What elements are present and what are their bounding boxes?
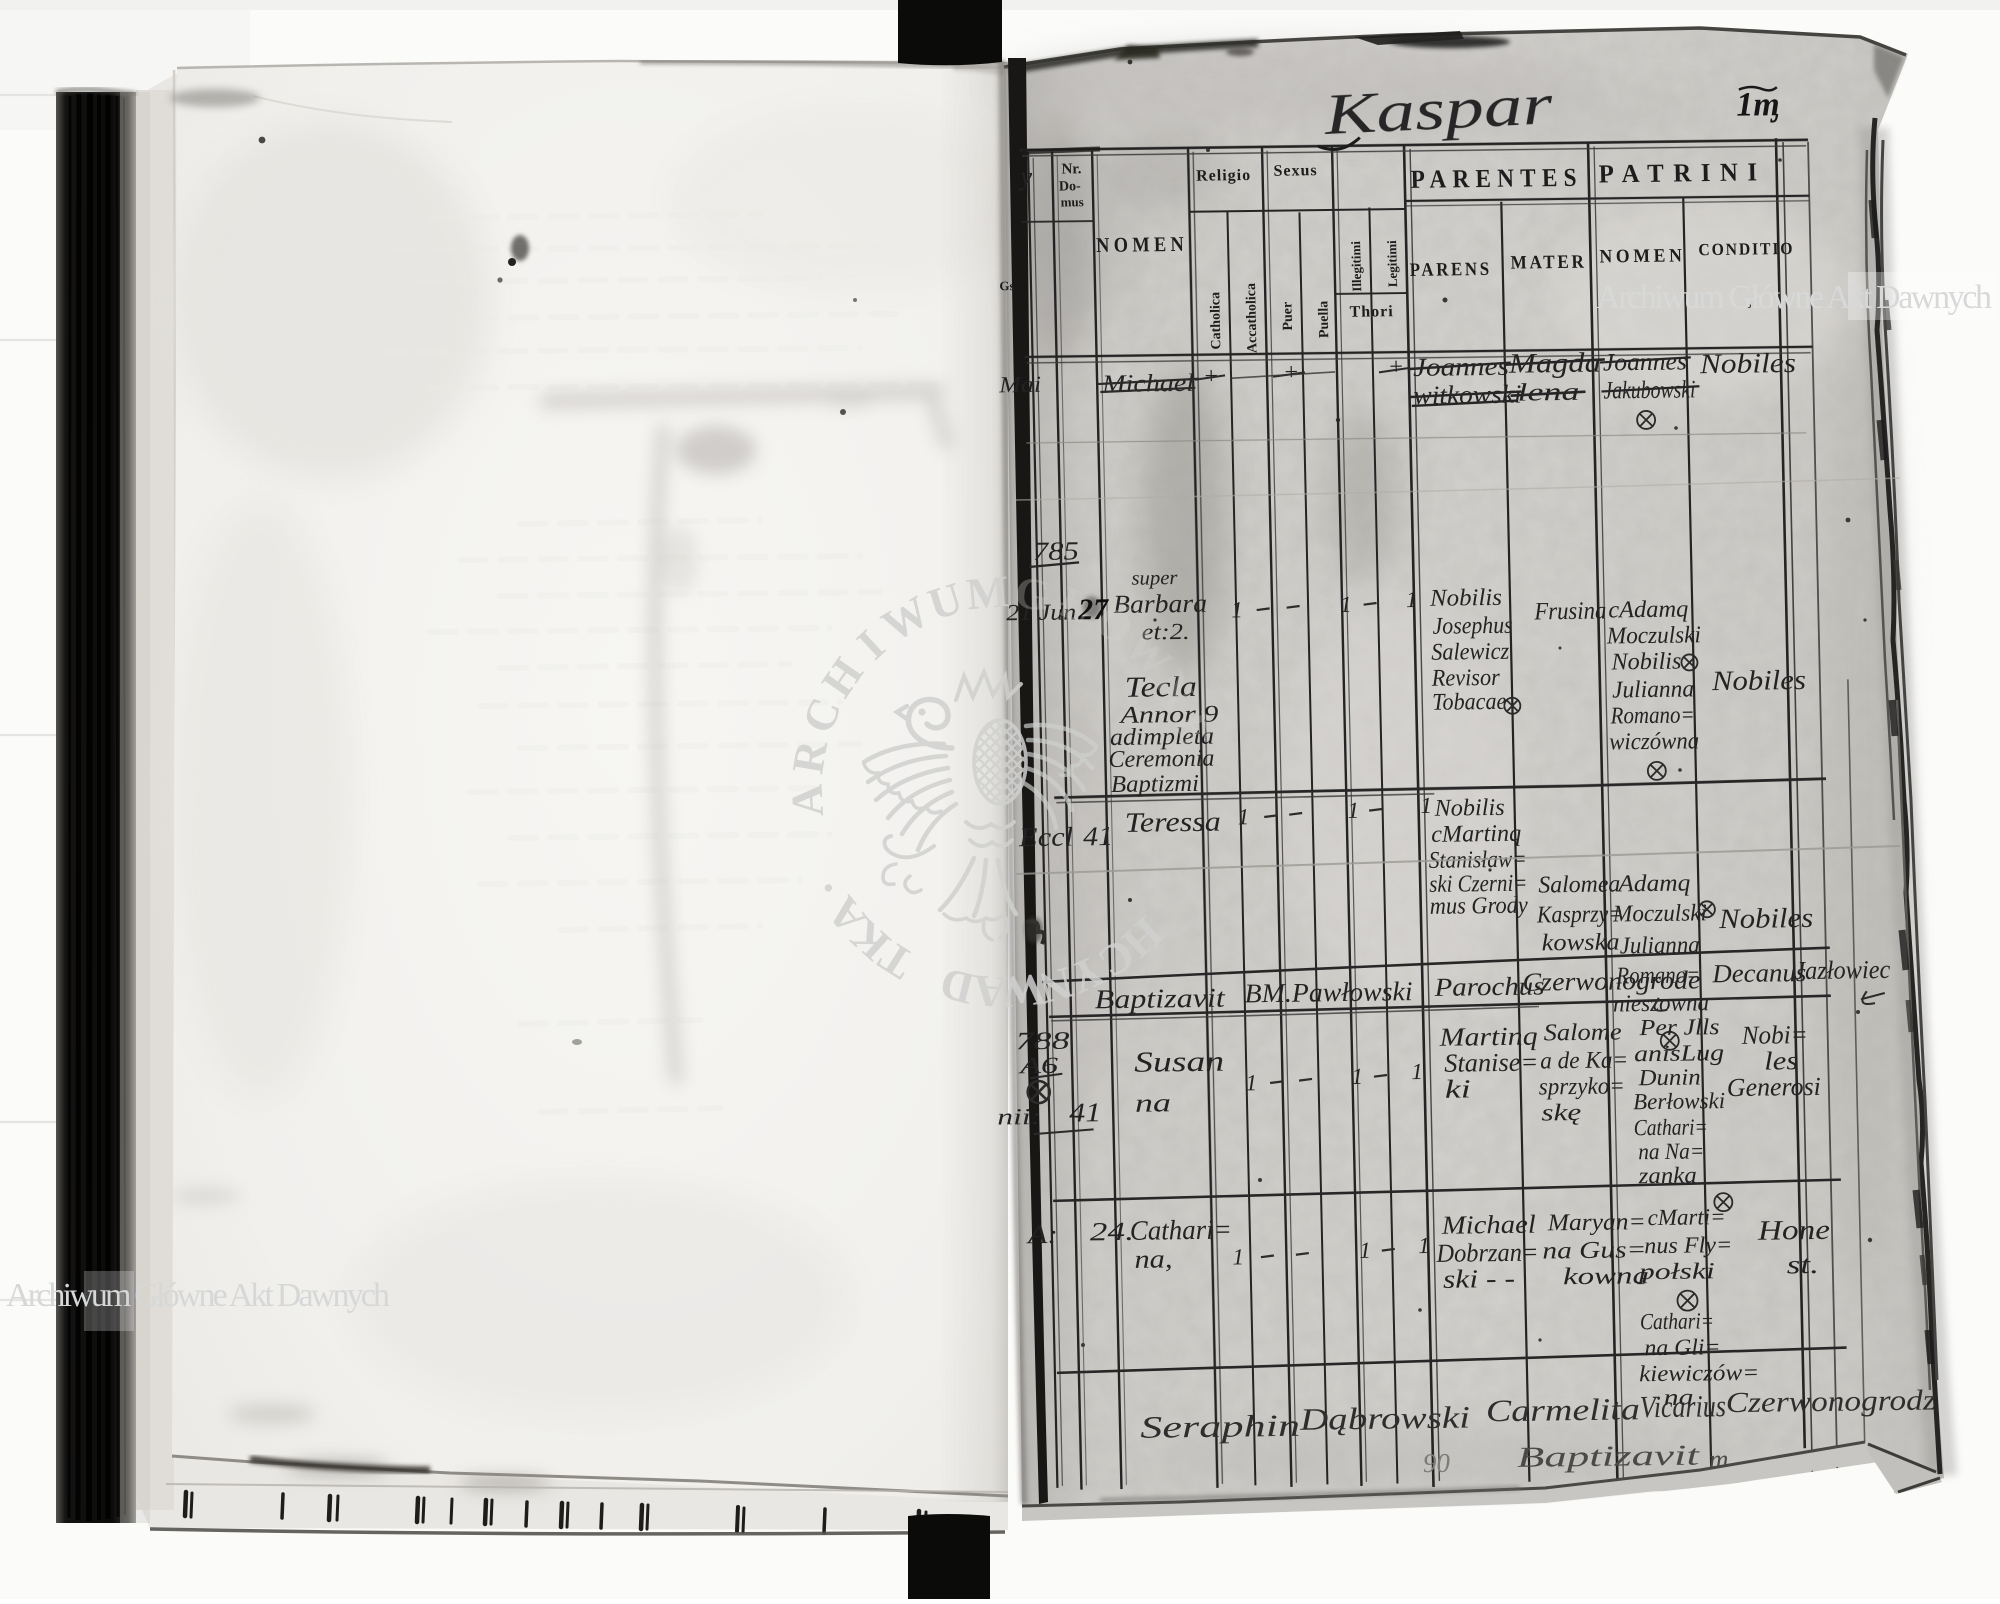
svg-text:1: 1 (1231, 597, 1243, 622)
svg-text:nii:: nii: (997, 1104, 1042, 1130)
svg-text:na: na (1135, 1088, 1172, 1117)
svg-text:M: M (964, 566, 1011, 620)
svg-text:1: 1 (1359, 1238, 1371, 1263)
svg-text:1: 1 (1411, 1059, 1423, 1084)
svg-text:Dunin: Dunin (1637, 1064, 1701, 1090)
svg-text:PATRINI: PATRINI (1598, 157, 1767, 188)
svg-text:połski: połski (1636, 1258, 1715, 1284)
svg-text:Baptizavit: Baptizavit (1517, 1440, 1701, 1474)
svg-text:Maryan=: Maryan= (1546, 1209, 1646, 1236)
svg-text:Per Jlls: Per Jlls (1638, 1014, 1720, 1040)
svg-text:1ᶆ: 1ᶆ (1736, 86, 1780, 124)
svg-text:Carmelita: Carmelita (1485, 1391, 1640, 1428)
svg-text:Sexus: Sexus (1273, 162, 1318, 180)
svg-text:Archiwum Główne Akt Dawnych: Archiwum Główne Akt Dawnych (1596, 279, 1992, 316)
svg-text:ski - -: ski - - (1443, 1264, 1516, 1294)
svg-text:Czerwonogrode: Czerwonogrode (1522, 965, 1701, 996)
svg-text:Tobacae: Tobacae (1432, 689, 1507, 716)
svg-text:Kasprzy=: Kasprzy= (1536, 901, 1623, 928)
svg-text:les: les (1764, 1046, 1799, 1075)
svg-text:CONDITIO: CONDITIO (1698, 239, 1794, 259)
svg-text:Moczulski: Moczulski (1612, 900, 1708, 927)
svg-text:Josephus: Josephus (1432, 613, 1513, 640)
svg-text:Susan: Susan (1134, 1046, 1225, 1079)
svg-text:Stanise=: Stanise= (1444, 1048, 1539, 1078)
svg-text:wiczówna: wiczówna (1609, 728, 1700, 755)
svg-text:Illegitimi: Illegitimi (1348, 241, 1364, 292)
svg-text:A: A (781, 782, 833, 818)
svg-text:Puer: Puer (1280, 302, 1296, 331)
svg-text:Hone: Hone (1756, 1215, 1830, 1247)
svg-text:Salewicz: Salewicz (1431, 639, 1510, 666)
svg-text:1: 1 (1420, 793, 1432, 818)
svg-text:cMarti=: cMarti= (1647, 1204, 1726, 1230)
svg-text:PARENS: PARENS (1410, 259, 1492, 281)
svg-text:1: 1 (1232, 1244, 1244, 1269)
svg-text:Adamq: Adamq (1616, 871, 1691, 898)
svg-text:MATER: MATER (1510, 252, 1586, 274)
svg-text:Czerwonogrodz: Czerwonogrodz (1725, 1384, 1936, 1419)
svg-text:Accatholica: Accatholica (1244, 283, 1261, 353)
svg-text:na Gli=: na Gli= (1644, 1334, 1721, 1360)
svg-text:41: 41 (1083, 821, 1114, 851)
svg-text:Cathari=: Cathari= (1633, 1114, 1708, 1140)
svg-text:Nobiles: Nobiles (1718, 903, 1814, 935)
svg-text:Thori: Thori (1349, 303, 1393, 321)
svg-text:BM.Pawłowski: BM.Pawłowski (1244, 976, 1413, 1008)
svg-text:kowna: kowna (1563, 1263, 1650, 1290)
svg-text:cAdamq: cAdamq (1608, 596, 1689, 623)
svg-text:zanka: zanka (1637, 1163, 1697, 1189)
svg-text:Mai: Mai (998, 372, 1042, 398)
svg-text:Berłowski: Berłowski (1633, 1088, 1726, 1114)
svg-text:Teressa: Teressa (1124, 807, 1221, 839)
svg-text:41: 41 (1069, 1097, 1102, 1127)
svg-text:Baptizmi: Baptizmi (1111, 771, 1200, 798)
svg-text:NOMEN: NOMEN (1599, 245, 1685, 267)
svg-text:Catholica: Catholica (1208, 292, 1224, 350)
svg-text:788: 788 (1015, 1028, 1070, 1056)
svg-text:1: 1 (1245, 1070, 1257, 1095)
svg-text:Baptizavit: Baptizavit (1094, 983, 1226, 1015)
svg-text:skę: skę (1541, 1100, 1582, 1127)
svg-text:kowska: kowska (1541, 929, 1620, 956)
svg-text:Cathari=: Cathari= (1640, 1308, 1715, 1334)
svg-text:Nr.: Nr. (1061, 161, 1081, 177)
svg-text:+: + (1388, 354, 1405, 380)
svg-text:1: 1 (1351, 1064, 1363, 1089)
svg-text:Salome: Salome (1543, 1019, 1622, 1046)
svg-text:Julianna: Julianna (1612, 676, 1695, 703)
svg-text:Decanus: Decanus (1711, 958, 1807, 988)
svg-text:Nobilis: Nobilis (1433, 795, 1505, 822)
svg-text:Julianna: Julianna (1619, 932, 1700, 959)
svg-text:Legitimi: Legitimi (1384, 240, 1400, 288)
svg-text:Nobilis: Nobilis (1610, 649, 1682, 676)
svg-text:90: 90 (1423, 1448, 1451, 1478)
svg-text:Michael: Michael (1440, 1210, 1536, 1240)
svg-text:Cathari=: Cathari= (1129, 1215, 1232, 1247)
svg-text:Nobilis: Nobilis (1429, 585, 1503, 612)
svg-text:1: 1 (1340, 592, 1352, 617)
svg-text:cMartinq: cMartinq (1431, 821, 1522, 848)
svg-text:Do-: Do- (1059, 179, 1081, 194)
svg-text:Frusina: Frusina (1533, 598, 1607, 626)
svg-text:st.: st. (1786, 1250, 1819, 1279)
svg-text:Revisor: Revisor (1431, 665, 1501, 692)
svg-text:Nobiles: Nobiles (1710, 665, 1806, 697)
svg-text:24.: 24. (1089, 1217, 1134, 1247)
svg-text:super: super (1131, 567, 1178, 590)
svg-text:Dąbrowski: Dąbrowski (1298, 1400, 1470, 1437)
svg-text:mus Grody: mus Grody (1429, 893, 1528, 920)
svg-text:1: 1 (1237, 804, 1249, 829)
svg-text:Eccl: Eccl (1018, 822, 1074, 853)
svg-text:Kaspar: Kaspar (1321, 71, 1554, 147)
svg-text:Salomea: Salomea (1538, 871, 1621, 898)
svg-text:ki: ki (1444, 1074, 1471, 1103)
svg-text:na Na=: na Na= (1638, 1138, 1705, 1164)
svg-text:PARENTES: PARENTES (1410, 163, 1583, 194)
svg-text:Generosi: Generosi (1727, 1072, 1822, 1102)
svg-text:Puella: Puella (1316, 301, 1332, 339)
svg-text:Nobiles: Nobiles (1698, 348, 1796, 380)
svg-text:kiewiczów=: kiewiczów= (1639, 1360, 1760, 1387)
svg-text:a de Ka=: a de Ka= (1540, 1047, 1629, 1074)
svg-text:1: 1 (1418, 1233, 1430, 1258)
svg-text:nus Fly=: nus Fly= (1644, 1232, 1733, 1258)
svg-text:mus: mus (1060, 194, 1083, 209)
svg-text:na,: na, (1134, 1244, 1173, 1273)
svg-text:NOMEN: NOMEN (1096, 232, 1189, 257)
svg-text:Vicarius: Vicarius (1639, 1388, 1726, 1424)
svg-text:Seraphin: Seraphin (1140, 1408, 1301, 1445)
svg-text:Religio: Religio (1196, 167, 1251, 185)
svg-text:A:: A: (1025, 1220, 1058, 1249)
svg-text:Jazłowiec: Jazłowiec (1794, 955, 1891, 985)
svg-text:Archiwum Główne Akt Dawnych: Archiwum Główne Akt Dawnych (6, 1277, 390, 1314)
svg-text:anisLug: anisLug (1634, 1040, 1725, 1066)
svg-text:1: 1 (1347, 798, 1359, 823)
svg-text:Gs: Gs (999, 278, 1014, 293)
svg-text:na Gus=: na Gus= (1542, 1237, 1647, 1264)
svg-text:785: 785 (1033, 536, 1080, 566)
svg-text:sprzyko=: sprzyko= (1538, 1073, 1625, 1100)
svg-text:1: 1 (1406, 587, 1418, 612)
svg-text:Ceremonia: Ceremonia (1108, 746, 1215, 773)
svg-text:Moczulski: Moczulski (1606, 622, 1702, 649)
svg-text:Romano=: Romano= (1609, 702, 1694, 729)
svg-text:G: G (1012, 567, 1054, 621)
